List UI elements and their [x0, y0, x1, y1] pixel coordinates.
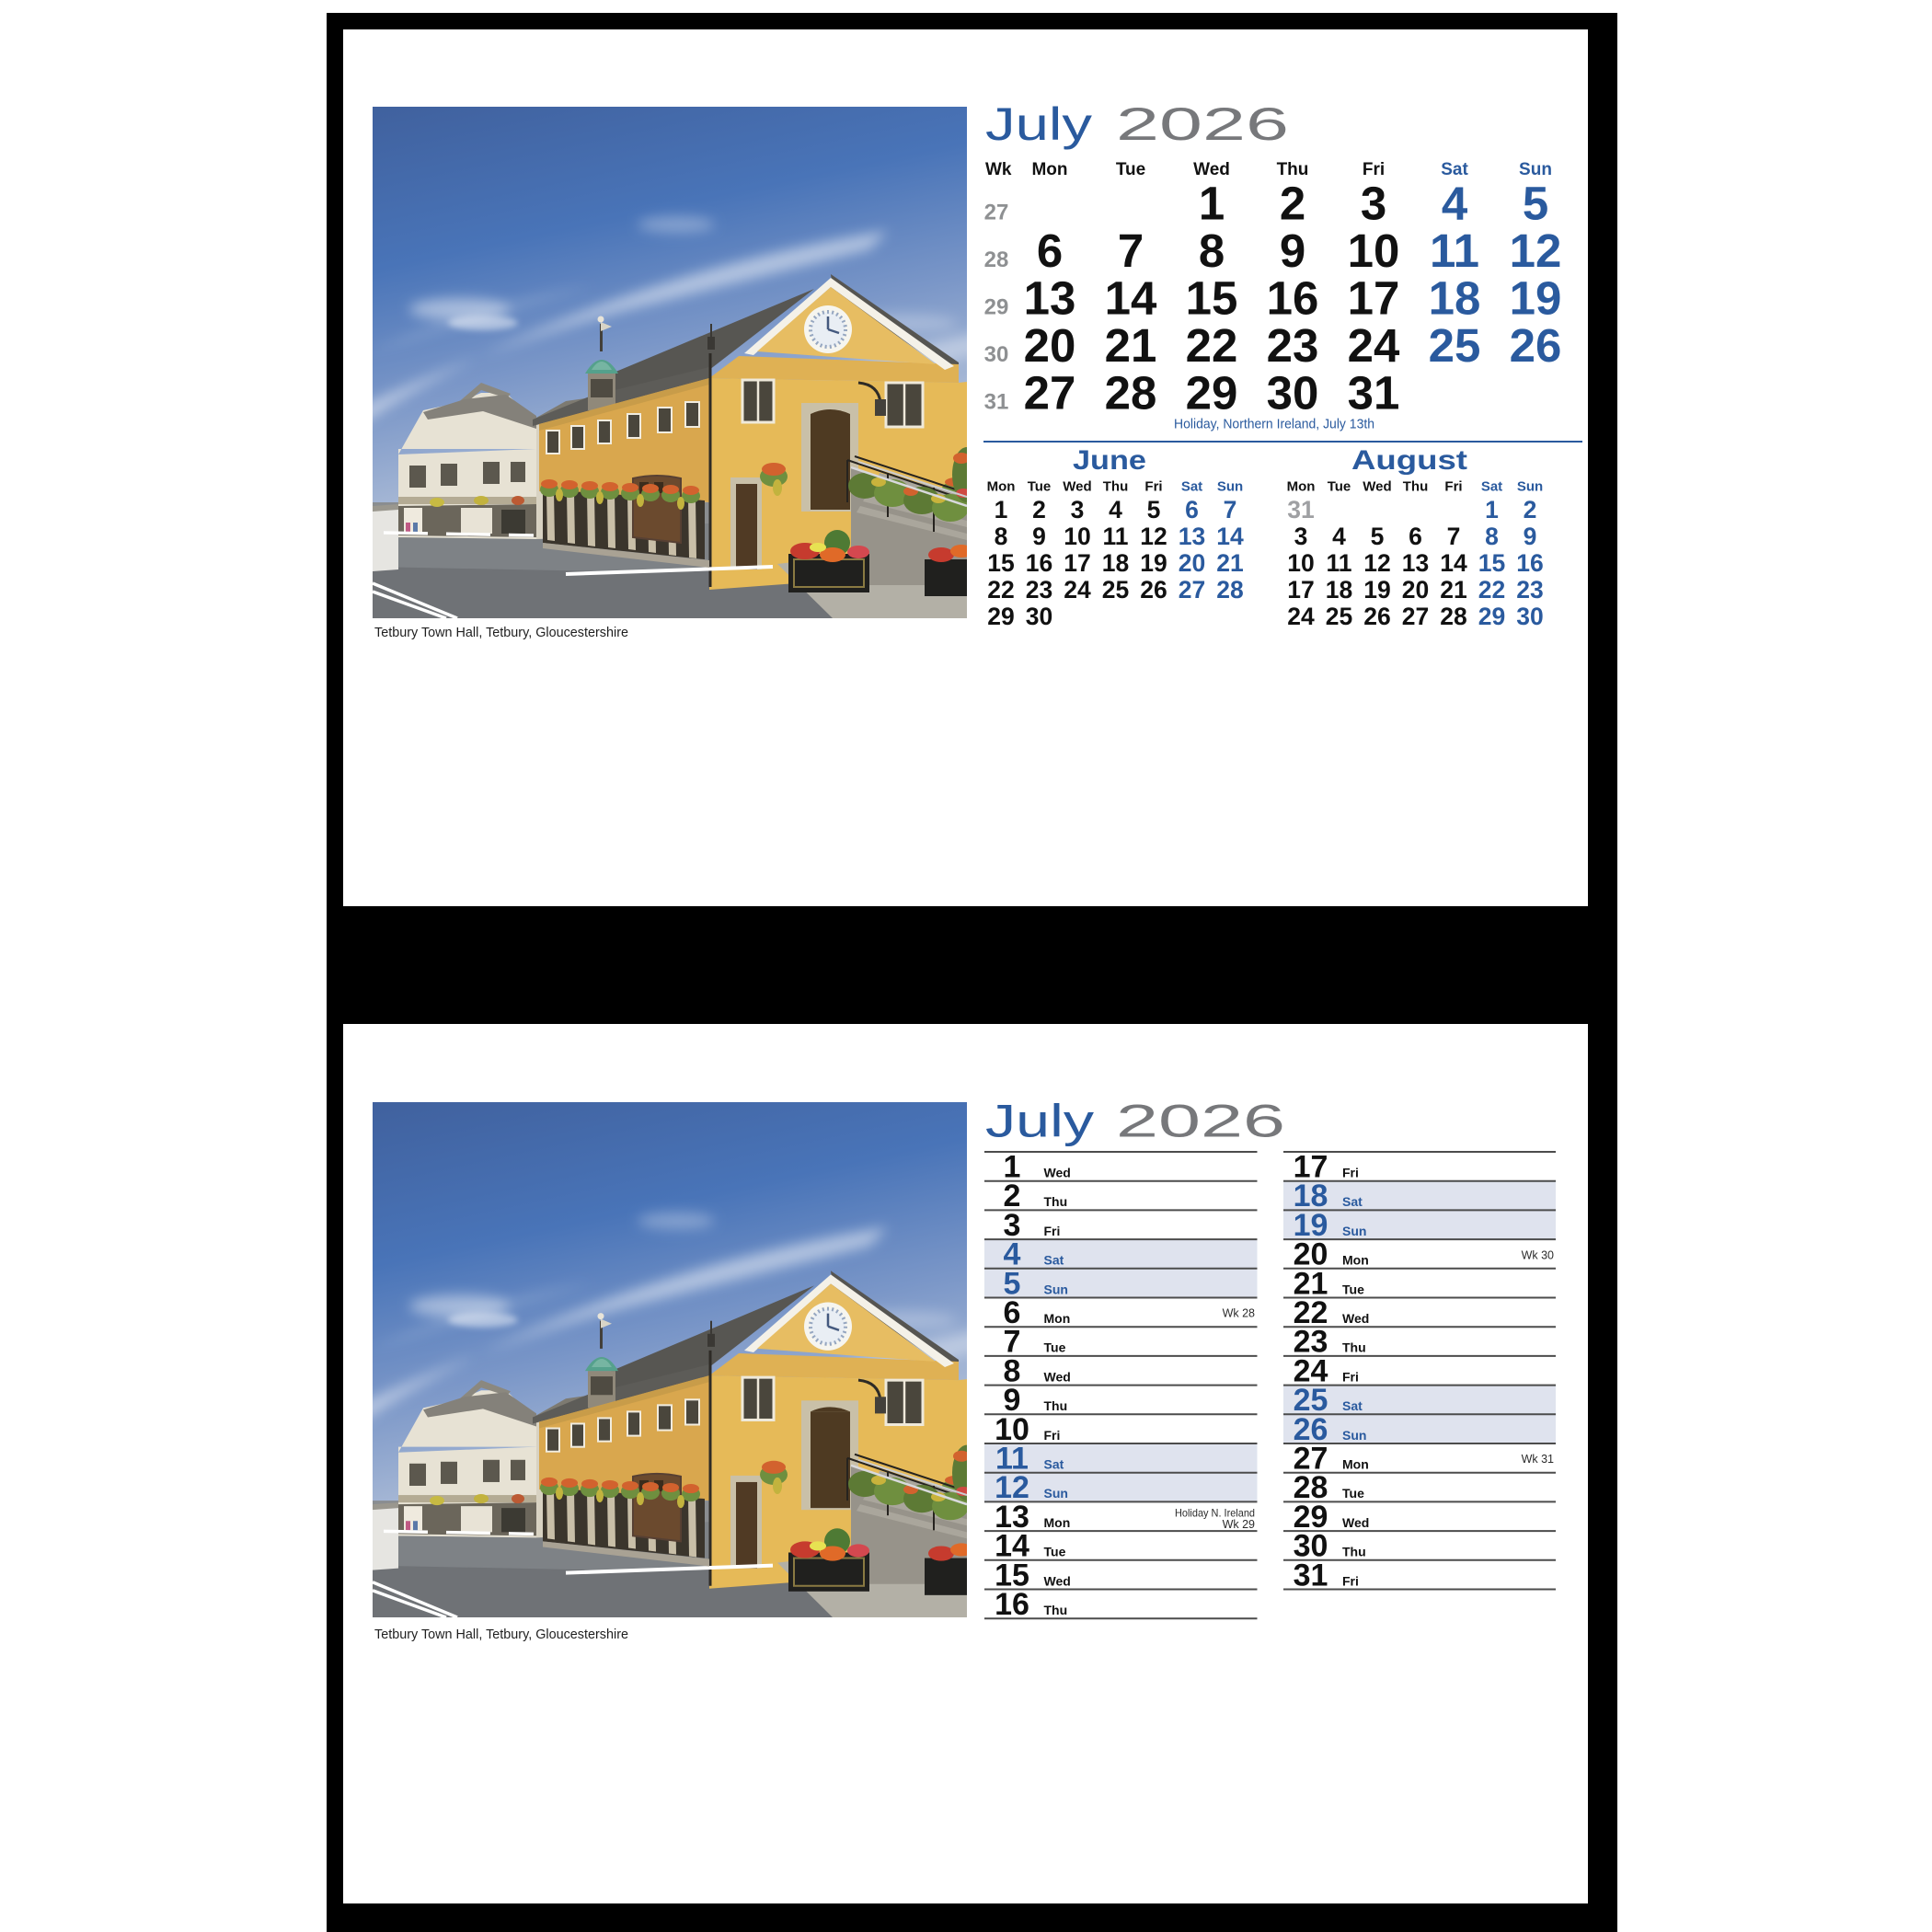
svg-text:23: 23	[1267, 319, 1319, 372]
svg-text:28: 28	[1105, 367, 1157, 420]
svg-text:Mon: Mon	[1342, 1253, 1369, 1268]
svg-text:17: 17	[1064, 549, 1090, 577]
svg-text:2: 2	[1032, 496, 1046, 523]
svg-text:19: 19	[1510, 272, 1562, 325]
svg-text:Tue: Tue	[1328, 479, 1351, 495]
svg-text:31: 31	[984, 390, 1009, 415]
svg-text:Sun: Sun	[1342, 1224, 1366, 1238]
svg-text:16: 16	[1516, 549, 1543, 577]
svg-text:Sat: Sat	[1181, 479, 1202, 495]
svg-text:18: 18	[1326, 576, 1352, 604]
svg-text:July: July	[985, 98, 1092, 150]
svg-text:16: 16	[1267, 272, 1319, 325]
svg-text:23: 23	[1516, 576, 1543, 604]
svg-text:4: 4	[1442, 178, 1468, 230]
svg-text:Tue: Tue	[1044, 1545, 1066, 1559]
svg-text:Mon: Mon	[1342, 1457, 1369, 1472]
svg-text:Tue: Tue	[1342, 1282, 1364, 1296]
svg-text:14: 14	[1216, 523, 1244, 550]
svg-text:Wk 31: Wk 31	[1522, 1453, 1554, 1466]
svg-text:12: 12	[1363, 549, 1390, 577]
svg-text:6: 6	[1409, 523, 1422, 550]
svg-text:Fri: Fri	[1044, 1224, 1061, 1238]
svg-text:Thu: Thu	[1342, 1340, 1366, 1355]
svg-text:Fri: Fri	[1342, 1166, 1359, 1180]
svg-text:11: 11	[1430, 224, 1479, 277]
svg-text:Tue: Tue	[1028, 479, 1052, 495]
svg-text:7: 7	[1224, 496, 1237, 523]
svg-text:24: 24	[1064, 576, 1091, 604]
svg-text:Sun: Sun	[1044, 1282, 1068, 1296]
svg-text:Fri: Fri	[1342, 1573, 1359, 1588]
svg-text:30: 30	[1516, 603, 1543, 630]
svg-text:Wed: Wed	[1044, 1573, 1071, 1588]
svg-text:Tetbury Town Hall, Tetbury, Gl: Tetbury Town Hall, Tetbury, Gloucestersh…	[374, 625, 628, 640]
svg-text:Wed: Wed	[1063, 479, 1091, 495]
svg-text:7: 7	[1447, 523, 1461, 550]
svg-text:27: 27	[1402, 603, 1429, 630]
svg-text:5: 5	[1371, 523, 1385, 550]
svg-text:29: 29	[987, 603, 1014, 630]
svg-text:11: 11	[1102, 523, 1128, 550]
svg-text:8: 8	[1199, 224, 1225, 277]
svg-text:28: 28	[1216, 576, 1243, 604]
svg-text:16: 16	[995, 1587, 1029, 1622]
svg-text:27: 27	[1179, 576, 1205, 604]
svg-text:17: 17	[1287, 576, 1314, 604]
svg-text:June: June	[1073, 445, 1146, 476]
svg-text:13: 13	[1024, 272, 1076, 325]
svg-text:4: 4	[1332, 523, 1346, 550]
svg-text:31: 31	[1348, 367, 1400, 420]
svg-text:Fri: Fri	[1444, 479, 1462, 495]
svg-text:25: 25	[1326, 603, 1352, 630]
svg-text:20: 20	[1024, 319, 1076, 372]
svg-text:Wk 28: Wk 28	[1223, 1307, 1255, 1320]
svg-text:Holiday, Northern Ireland, Jul: Holiday, Northern Ireland, July 13th	[1174, 417, 1374, 432]
svg-text:10: 10	[1064, 523, 1090, 550]
svg-text:2026: 2026	[1116, 98, 1289, 150]
svg-text:30: 30	[1026, 603, 1052, 630]
svg-text:11: 11	[1326, 549, 1351, 577]
svg-text:3: 3	[1294, 523, 1308, 550]
svg-text:17: 17	[1348, 272, 1400, 325]
svg-text:27: 27	[984, 201, 1009, 225]
svg-text:Thu: Thu	[1403, 479, 1429, 495]
svg-text:5: 5	[1523, 178, 1548, 230]
svg-text:28: 28	[984, 247, 1009, 272]
svg-text:Wk: Wk	[985, 160, 1012, 179]
svg-text:Sat: Sat	[1342, 1398, 1363, 1413]
svg-text:22: 22	[1186, 319, 1238, 372]
svg-text:7: 7	[1118, 224, 1144, 277]
svg-text:Mon: Mon	[1044, 1515, 1071, 1530]
svg-text:10: 10	[1348, 224, 1400, 277]
svg-text:Sun: Sun	[1044, 1486, 1068, 1501]
svg-text:13: 13	[1402, 549, 1429, 577]
svg-text:Sun: Sun	[1217, 479, 1243, 495]
svg-text:Wk 30: Wk 30	[1522, 1248, 1554, 1261]
svg-text:4: 4	[1109, 496, 1122, 523]
svg-text:19: 19	[1363, 576, 1390, 604]
svg-text:24: 24	[1287, 603, 1315, 630]
svg-text:Mon: Mon	[1287, 479, 1316, 495]
svg-text:12: 12	[1140, 523, 1167, 550]
svg-text:Fri: Fri	[1144, 479, 1162, 495]
svg-text:29: 29	[1478, 603, 1505, 630]
svg-text:Sat: Sat	[1481, 479, 1502, 495]
svg-text:9: 9	[1524, 523, 1537, 550]
svg-text:Tue: Tue	[1342, 1486, 1364, 1501]
svg-text:Tue: Tue	[1044, 1340, 1066, 1355]
svg-text:6: 6	[1185, 496, 1199, 523]
svg-text:Mon: Mon	[1031, 160, 1067, 179]
svg-text:8: 8	[995, 523, 1008, 550]
svg-text:9: 9	[1032, 523, 1046, 550]
svg-text:Wk 29: Wk 29	[1223, 1518, 1255, 1531]
svg-text:1: 1	[995, 496, 1008, 523]
svg-text:Fri: Fri	[1044, 1428, 1061, 1443]
svg-text:13: 13	[1179, 523, 1205, 550]
svg-text:30: 30	[984, 342, 1009, 367]
svg-text:3: 3	[1361, 178, 1386, 230]
svg-text:29: 29	[1186, 367, 1238, 420]
svg-text:Wed: Wed	[1342, 1515, 1369, 1530]
svg-text:20: 20	[1179, 549, 1205, 577]
svg-text:21: 21	[1440, 576, 1466, 604]
svg-text:Sun: Sun	[1517, 479, 1543, 495]
svg-text:25: 25	[1429, 319, 1481, 372]
svg-text:27: 27	[1024, 367, 1076, 420]
svg-text:Sat: Sat	[1044, 1457, 1064, 1472]
svg-text:2: 2	[1524, 496, 1537, 523]
svg-text:29: 29	[984, 295, 1009, 320]
svg-text:2026: 2026	[1116, 1096, 1285, 1147]
svg-text:Tetbury Town Hall, Tetbury, Gl: Tetbury Town Hall, Tetbury, Gloucestersh…	[374, 1627, 628, 1642]
svg-text:Sat: Sat	[1342, 1194, 1363, 1209]
svg-text:Wed: Wed	[1363, 479, 1391, 495]
svg-text:July: July	[985, 1096, 1094, 1147]
svg-text:1: 1	[1485, 496, 1499, 523]
svg-text:Sun: Sun	[1342, 1428, 1366, 1443]
svg-text:31: 31	[1294, 1558, 1328, 1593]
svg-text:23: 23	[1026, 576, 1052, 604]
svg-text:Fri: Fri	[1342, 1369, 1359, 1384]
svg-text:Thu: Thu	[1103, 479, 1129, 495]
svg-text:24: 24	[1348, 319, 1400, 372]
svg-text:Mon: Mon	[987, 479, 1016, 495]
svg-text:Mon: Mon	[1044, 1311, 1071, 1326]
svg-text:21: 21	[1105, 319, 1157, 372]
svg-text:18: 18	[1429, 272, 1481, 325]
svg-text:14: 14	[1105, 272, 1157, 325]
svg-text:12: 12	[1510, 224, 1562, 277]
svg-text:14: 14	[1440, 549, 1467, 577]
svg-text:20: 20	[1402, 576, 1429, 604]
svg-text:19: 19	[1140, 549, 1167, 577]
svg-text:28: 28	[1440, 603, 1466, 630]
svg-text:8: 8	[1485, 523, 1499, 550]
svg-text:Thu: Thu	[1342, 1545, 1366, 1559]
svg-text:15: 15	[1478, 549, 1505, 577]
svg-text:30: 30	[1267, 367, 1319, 420]
svg-text:Wed: Wed	[1044, 1166, 1071, 1180]
svg-text:16: 16	[1026, 549, 1052, 577]
svg-text:1: 1	[1199, 178, 1225, 230]
svg-text:25: 25	[1102, 576, 1129, 604]
svg-text:22: 22	[987, 576, 1014, 604]
svg-text:26: 26	[1140, 576, 1167, 604]
svg-text:15: 15	[987, 549, 1014, 577]
svg-text:3: 3	[1071, 496, 1085, 523]
svg-text:18: 18	[1102, 549, 1129, 577]
svg-text:Thu: Thu	[1044, 1194, 1068, 1209]
svg-text:26: 26	[1363, 603, 1390, 630]
svg-text:Tue: Tue	[1116, 160, 1145, 179]
svg-text:Wed: Wed	[1342, 1311, 1369, 1326]
svg-text:22: 22	[1478, 576, 1505, 604]
svg-text:9: 9	[1280, 224, 1305, 277]
svg-text:Thu: Thu	[1044, 1603, 1068, 1617]
svg-text:6: 6	[1037, 224, 1063, 277]
svg-text:10: 10	[1287, 549, 1314, 577]
svg-text:August: August	[1351, 445, 1467, 476]
svg-text:2: 2	[1280, 178, 1305, 230]
svg-text:26: 26	[1510, 319, 1562, 372]
svg-text:15: 15	[1186, 272, 1238, 325]
svg-text:5: 5	[1147, 496, 1161, 523]
svg-text:Wed: Wed	[1044, 1369, 1071, 1384]
svg-text:21: 21	[1216, 549, 1243, 577]
svg-text:Thu: Thu	[1044, 1398, 1068, 1413]
svg-text:Sat: Sat	[1044, 1253, 1064, 1268]
svg-text:31: 31	[1287, 496, 1314, 523]
